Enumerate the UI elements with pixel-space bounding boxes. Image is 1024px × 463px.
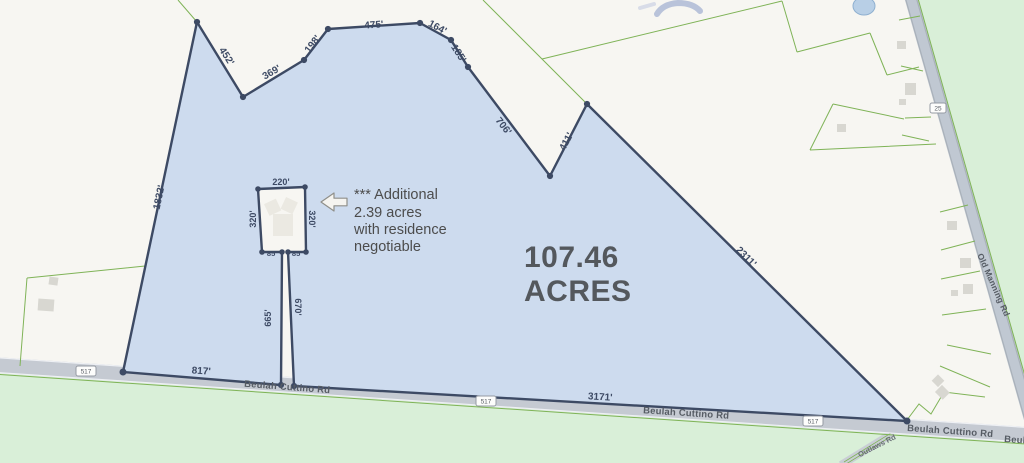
plat-map-canvas[interactable]: 452' 369' 198' 475' 164' 185' 706' 411' …	[0, 0, 1024, 463]
route-shield-25: 25	[930, 103, 946, 113]
acreage-label: 107.46 ACRES	[524, 241, 632, 308]
note-line-1: *** Additional	[354, 187, 438, 203]
route-shield-517-west: 517	[76, 366, 96, 376]
dimension-label-475: 475'	[364, 19, 384, 31]
note-line-4: negotiable	[354, 239, 421, 255]
dimension-label-817: 817'	[191, 365, 211, 377]
note-line-3: with residence	[353, 222, 447, 238]
dimension-label-85-left: 85'	[267, 249, 277, 258]
dimension-label-220: 220'	[272, 177, 289, 187]
acreage-unit: ACRES	[524, 275, 632, 308]
route-shield-517-east: 517	[803, 416, 823, 426]
dimension-label-320-right: 320'	[307, 210, 317, 227]
svg-text:25: 25	[934, 106, 942, 113]
dimension-label-320-left: 320'	[248, 210, 258, 227]
note-line-2: 2.39 acres	[354, 205, 422, 221]
svg-text:517: 517	[81, 369, 92, 376]
dimension-label-85-right: 85'	[292, 249, 302, 258]
route-shield-517-mid: 517	[476, 396, 496, 406]
pond	[853, 0, 875, 15]
svg-text:517: 517	[481, 399, 492, 406]
acreage-value: 107.46	[524, 241, 619, 274]
dimension-label-665: 665'	[263, 309, 273, 326]
dimension-label-3171: 3171'	[588, 391, 613, 403]
plat-map[interactable]: 452' 369' 198' 475' 164' 185' 706' 411' …	[0, 0, 1024, 463]
dimension-label-670: 670'	[293, 298, 303, 315]
svg-text:517: 517	[808, 419, 819, 426]
